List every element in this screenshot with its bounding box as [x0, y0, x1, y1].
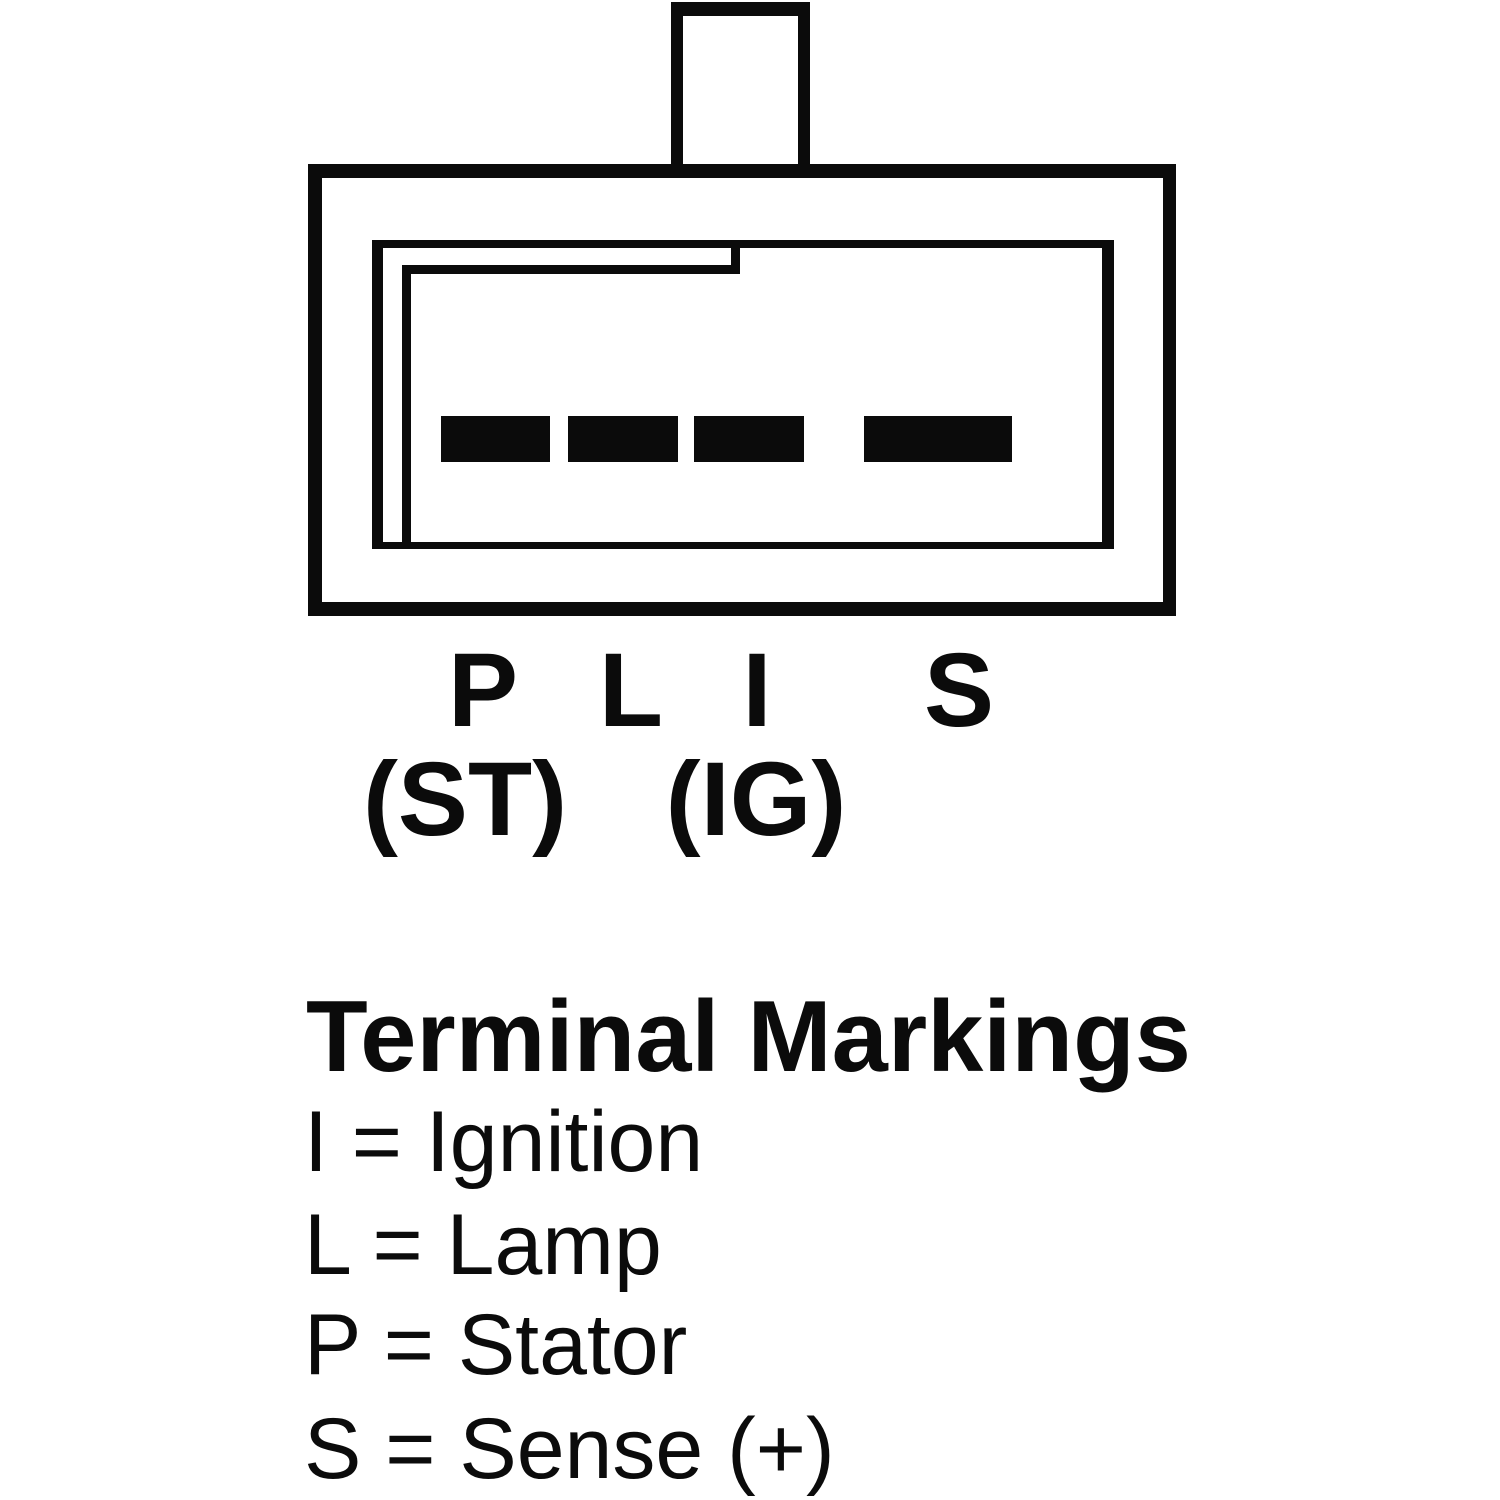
svg-text:S: S — [924, 632, 994, 749]
svg-text:S = Sense (+): S = Sense (+) — [304, 1401, 835, 1497]
svg-text:(ST): (ST) — [363, 741, 567, 858]
svg-text:I: I — [742, 632, 771, 749]
svg-text:L: L — [599, 632, 663, 749]
svg-text:L = Lamp: L = Lamp — [304, 1197, 662, 1293]
svg-text:Terminal Markings: Terminal Markings — [306, 981, 1191, 1093]
svg-text:I = Ignition: I = Ignition — [304, 1094, 703, 1190]
svg-text:P: P — [448, 632, 518, 749]
svg-text:P = Stator: P = Stator — [304, 1297, 687, 1393]
svg-text:(IG): (IG) — [666, 741, 847, 858]
